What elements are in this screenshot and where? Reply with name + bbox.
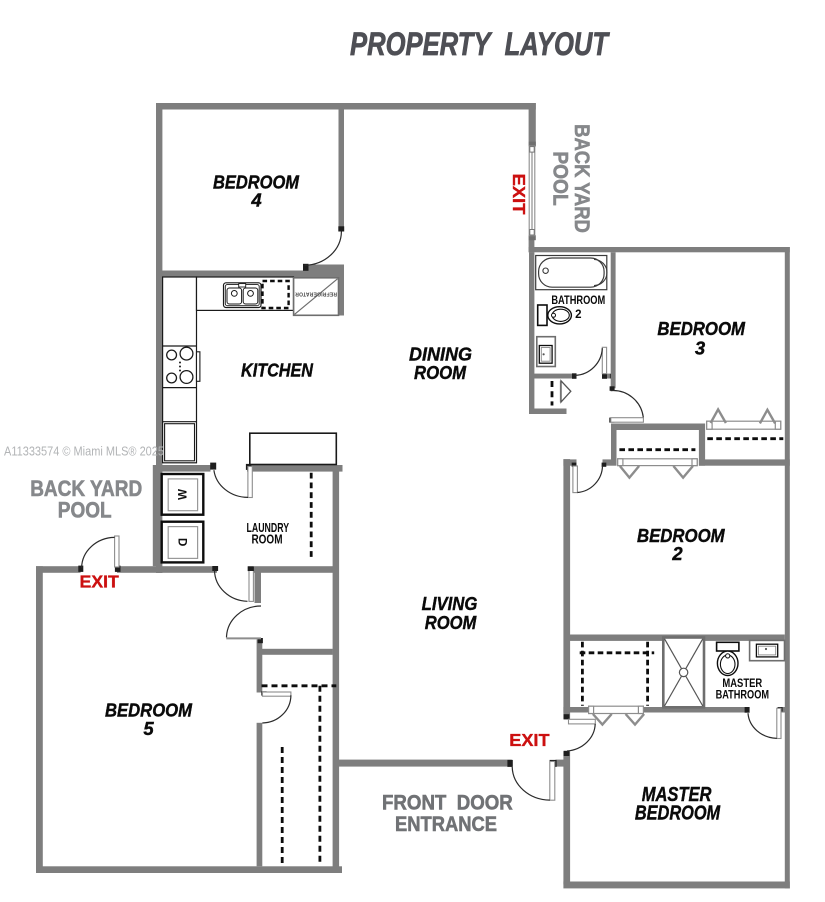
svg-text:BEDROOM: BEDROOM [657, 318, 745, 339]
svg-text:ENTRANCE: ENTRANCE [395, 812, 497, 836]
svg-text:W: W [178, 489, 190, 500]
svg-text:EXIT: EXIT [509, 174, 529, 215]
svg-text:LIVING: LIVING [422, 593, 478, 614]
svg-text:4: 4 [250, 189, 261, 210]
svg-text:FRONT DOOR: FRONT DOOR [382, 791, 513, 815]
svg-text:ROOM: ROOM [425, 612, 477, 633]
svg-text:2: 2 [575, 309, 581, 321]
svg-text:ROOM: ROOM [251, 532, 282, 546]
svg-text:PROPERTY LAYOUT: PROPERTY LAYOUT [350, 26, 610, 62]
svg-text:POOL: POOL [58, 498, 112, 523]
svg-text:BATHROOM: BATHROOM [551, 295, 605, 307]
svg-text:REFRIGERATOR: REFRIGERATOR [295, 290, 337, 296]
svg-text:BATHROOM: BATHROOM [716, 688, 769, 702]
svg-text:5: 5 [143, 718, 154, 739]
svg-text:KITCHEN: KITCHEN [241, 359, 314, 380]
svg-text:EXIT: EXIT [80, 572, 120, 592]
svg-text:2: 2 [671, 543, 683, 564]
svg-text:ROOM: ROOM [414, 362, 467, 383]
svg-text:BACK YARD: BACK YARD [570, 124, 593, 233]
svg-text:A11333574 © Miami MLS® 2025: A11333574 © Miami MLS® 2025 [4, 444, 164, 458]
svg-text:EXIT: EXIT [509, 730, 550, 750]
svg-text:POOL: POOL [548, 151, 571, 205]
svg-text:D: D [175, 538, 187, 546]
svg-text:3: 3 [695, 337, 706, 358]
svg-text:BEDROOM: BEDROOM [635, 802, 721, 824]
